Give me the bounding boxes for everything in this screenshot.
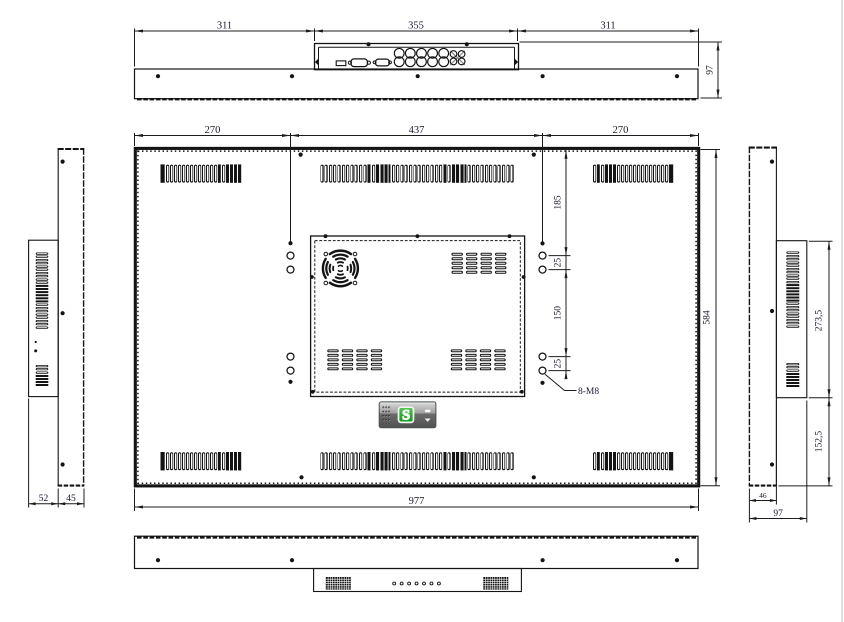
svg-text:25: 25 bbox=[554, 359, 564, 369]
svg-text:437: 437 bbox=[409, 125, 425, 136]
svg-text:977: 977 bbox=[409, 496, 425, 507]
svg-text:152,5: 152,5 bbox=[815, 431, 825, 453]
svg-text:355: 355 bbox=[408, 20, 424, 31]
svg-text:311: 311 bbox=[217, 20, 232, 31]
svg-text:8-M8: 8-M8 bbox=[578, 387, 599, 397]
svg-text:270: 270 bbox=[205, 125, 221, 136]
svg-text:273,5: 273,5 bbox=[815, 310, 825, 332]
svg-text:270: 270 bbox=[613, 125, 629, 136]
svg-text:S: S bbox=[402, 408, 410, 424]
svg-text:46: 46 bbox=[759, 491, 767, 500]
svg-text:150: 150 bbox=[554, 306, 564, 321]
svg-text:45: 45 bbox=[66, 494, 76, 504]
svg-text:52: 52 bbox=[39, 494, 49, 504]
svg-text:97: 97 bbox=[706, 65, 716, 75]
svg-text:311: 311 bbox=[600, 20, 615, 31]
svg-text:97: 97 bbox=[773, 509, 783, 519]
svg-text:584: 584 bbox=[703, 310, 713, 325]
svg-text:185: 185 bbox=[554, 195, 564, 210]
svg-text:25: 25 bbox=[554, 258, 564, 268]
